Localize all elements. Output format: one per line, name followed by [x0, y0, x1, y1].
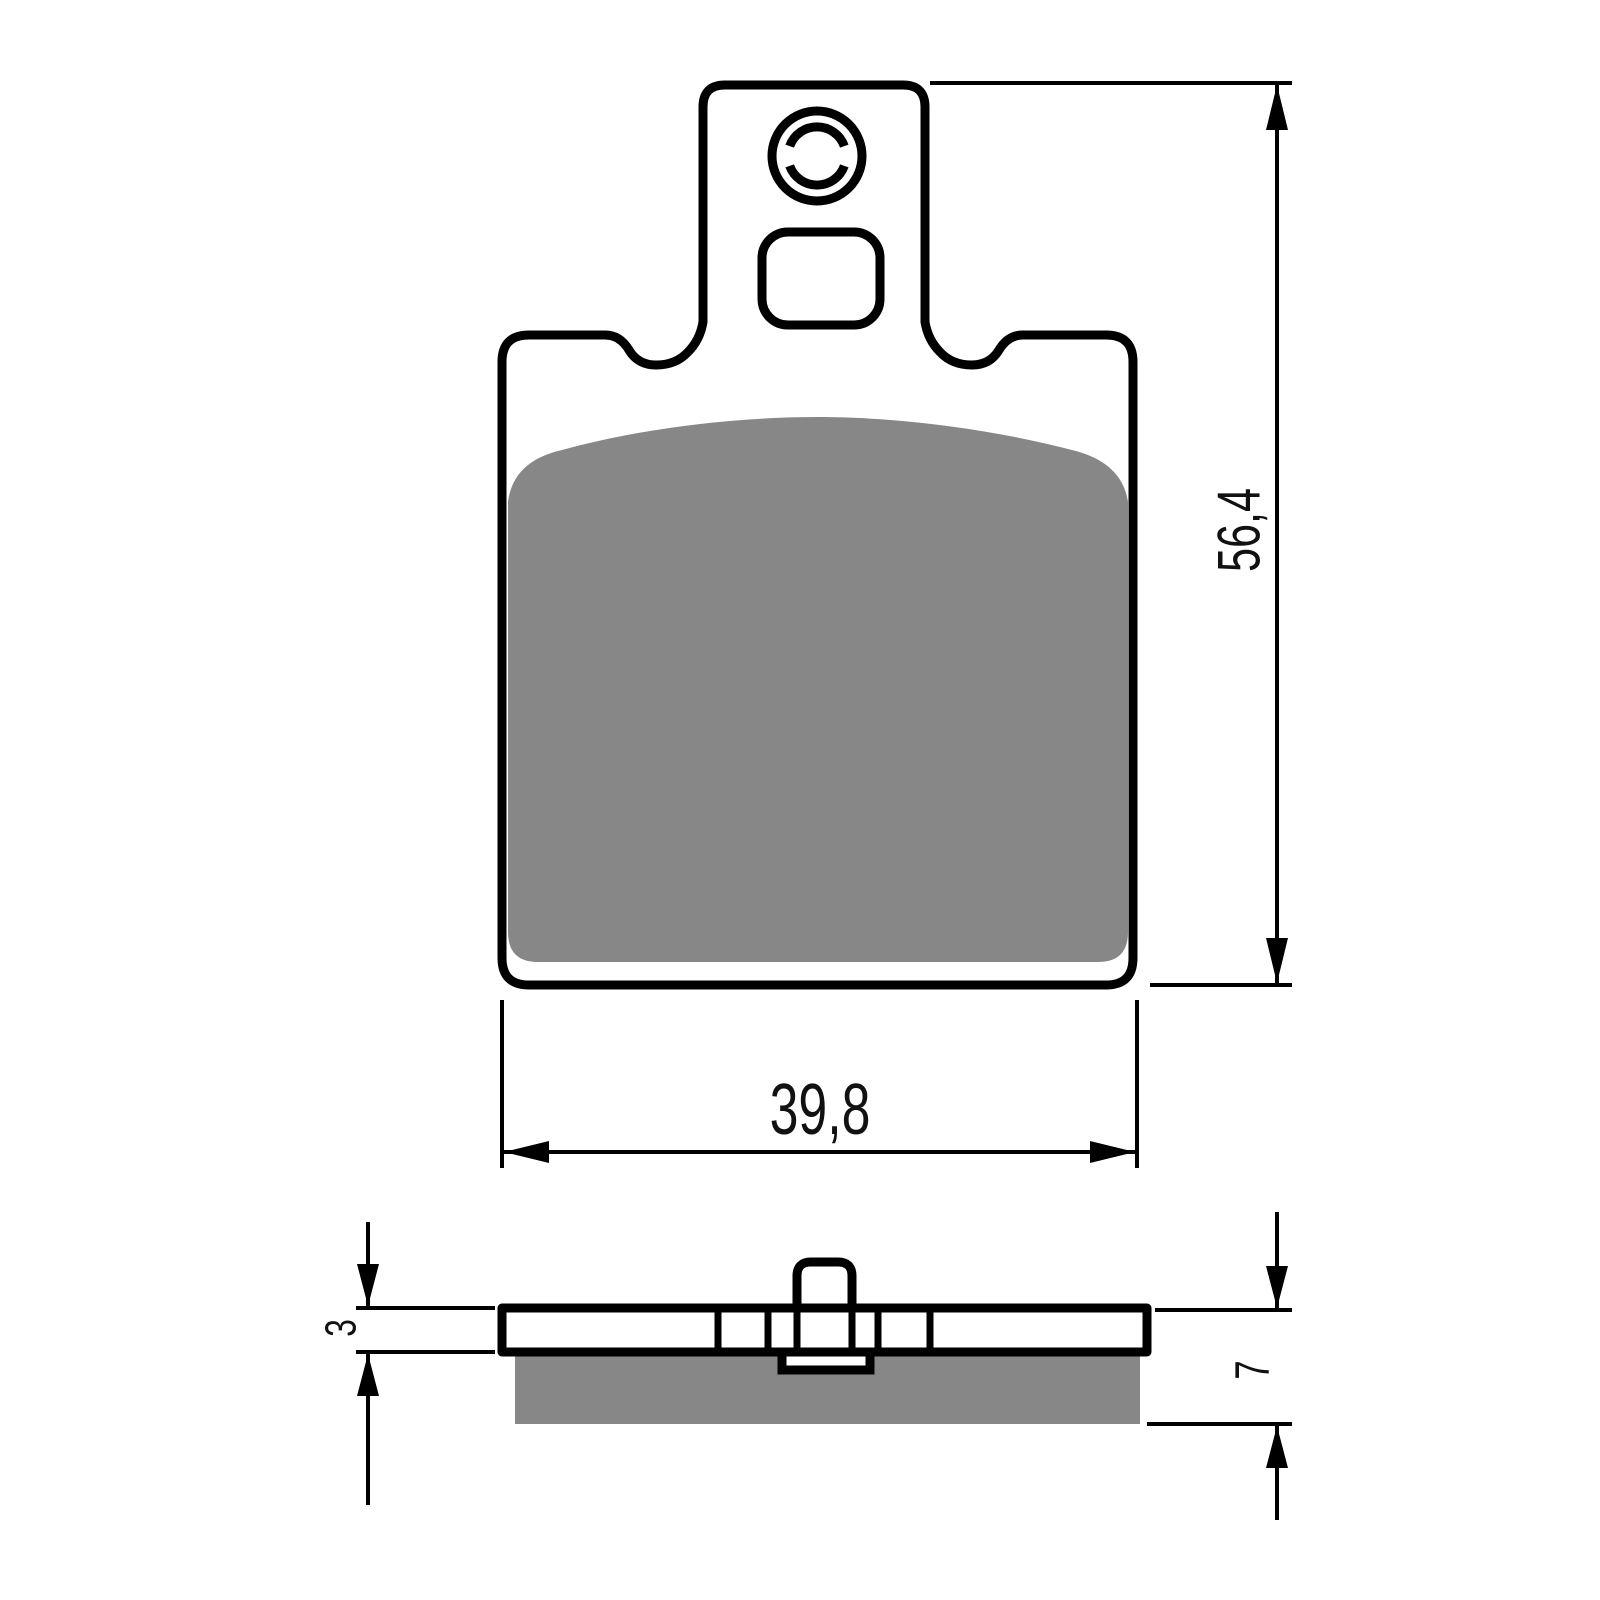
backing-plate: [502, 1308, 1147, 1352]
width-arrow-right: [1090, 1141, 1135, 1163]
height-arrow-up: [1266, 85, 1288, 130]
plate-thickness-label: 3: [316, 1319, 365, 1337]
total-arrow-up: [1266, 1426, 1288, 1468]
width-arrow-left: [504, 1141, 549, 1163]
dimension-plate-thickness: 3: [316, 1222, 495, 1505]
total-arrow-down: [1266, 1266, 1288, 1308]
brake-pad-technical-drawing: 56,4 39,8: [0, 0, 1600, 1600]
total-thickness-label: 7: [1225, 1360, 1279, 1379]
tab-profile: [797, 1262, 852, 1308]
plate-arrow-up: [357, 1354, 379, 1396]
drawing-svg: 56,4 39,8: [0, 0, 1600, 1600]
height-dimension-label: 56,4: [1207, 488, 1274, 572]
dimension-width: 39,8: [502, 1000, 1137, 1168]
plate-arrow-down: [357, 1264, 379, 1306]
front-view: [502, 85, 1133, 985]
width-dimension-label: 39,8: [770, 1070, 871, 1150]
dimension-total-thickness: 7: [1147, 1212, 1292, 1520]
friction-material-front: [508, 417, 1128, 962]
side-view: [502, 1262, 1147, 1424]
height-arrow-down: [1266, 938, 1288, 983]
